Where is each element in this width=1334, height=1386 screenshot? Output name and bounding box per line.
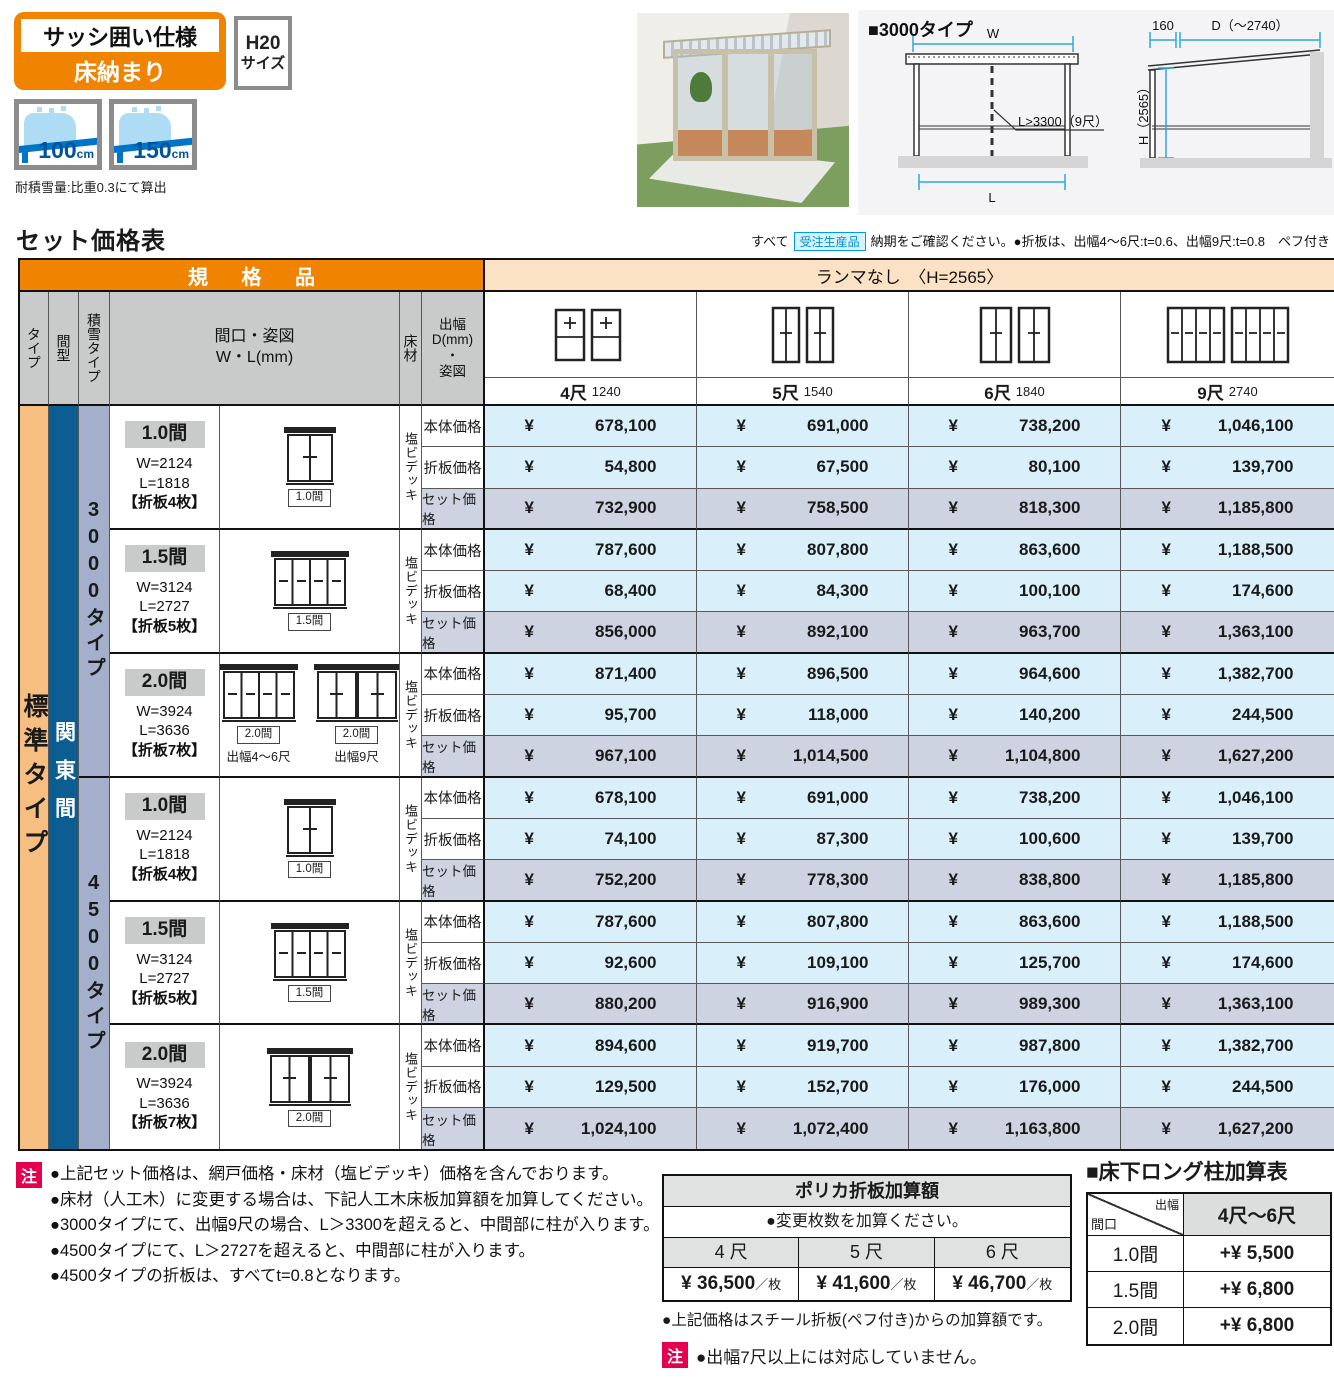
yen-symbol: ¥ xyxy=(1162,540,1171,560)
diag-label-depth: 出幅 xyxy=(1155,1196,1179,1213)
price-cell: ¥1,185,800 xyxy=(1121,860,1334,901)
price-number: 244,500 xyxy=(1232,705,1293,725)
price-value: ¥1,382,700 xyxy=(1162,664,1294,684)
roof-leg-icon xyxy=(117,148,123,163)
price-number: 738,200 xyxy=(1019,788,1080,808)
elevation-diagram-cell: 1.5間 xyxy=(220,902,400,1026)
price-cell: ¥678,100 xyxy=(485,778,697,819)
price-value: ¥1,627,200 xyxy=(1162,1119,1294,1139)
price-value: ¥919,700 xyxy=(737,1036,869,1056)
price-number: 1,188,500 xyxy=(1218,912,1294,932)
price-value: ¥871,400 xyxy=(525,664,657,684)
col-header-depth-line: 姿図 xyxy=(439,364,466,380)
size-shaku: 6尺 xyxy=(984,379,1010,404)
price-number: 174,600 xyxy=(1232,581,1293,601)
price-cell: ¥752,200 xyxy=(485,860,697,901)
window-elevation-figure: 1.5間 xyxy=(271,923,349,1003)
yen-symbol: ¥ xyxy=(1162,953,1171,973)
price-number: 244,500 xyxy=(1232,1077,1293,1097)
yen-symbol: ¥ xyxy=(525,788,534,808)
panel-count: 【折板5枚】 xyxy=(123,989,206,1009)
price-value: ¥118,000 xyxy=(737,705,869,725)
price-cell: ¥1,382,700 xyxy=(1121,654,1334,695)
size-class-badge: H20 サイズ xyxy=(234,16,292,90)
price-cell: ¥691,000 xyxy=(697,406,909,447)
yen-symbol: ¥ xyxy=(1162,912,1171,932)
price-row-label: 本体価格 xyxy=(422,654,485,695)
price-cell: ¥1,382,700 xyxy=(1121,1025,1334,1066)
panel-count: 【折板7枚】 xyxy=(123,1113,206,1133)
yen-symbol: ¥ xyxy=(949,953,958,973)
price-value: ¥838,800 xyxy=(949,870,1081,890)
col-header-snowtype: 積雪タイプ xyxy=(79,292,110,406)
figure-span-label: 1.0間 xyxy=(288,489,332,507)
yen-symbol: ¥ xyxy=(949,581,958,601)
figure-span-label: 1.0間 xyxy=(288,861,332,879)
polyca-price: ¥ 41,600 xyxy=(817,1273,891,1294)
price-value: ¥1,046,100 xyxy=(1162,416,1294,436)
price-row-label: 折板価格 xyxy=(422,943,485,984)
price-cell: ¥738,200 xyxy=(909,406,1121,447)
price-cell: ¥838,800 xyxy=(909,860,1121,901)
note-badge: 注 xyxy=(16,1162,42,1188)
long-pillar-add: +¥ 5,500 xyxy=(1184,1236,1330,1272)
snow-load-icon-100cm: 100cm xyxy=(14,99,102,170)
figure-caption: 出幅4～6尺 xyxy=(227,746,291,765)
price-value: ¥967,100 xyxy=(525,746,657,766)
price-value: ¥109,100 xyxy=(737,953,869,973)
price-cell: ¥87,300 xyxy=(697,819,909,860)
price-cell: ¥1,363,100 xyxy=(1121,984,1334,1025)
price-number: 1,185,800 xyxy=(1218,870,1294,890)
price-row-label: セット価格 xyxy=(422,612,485,653)
figure-span-label: 2.0間 xyxy=(288,1110,332,1128)
dim-l: L=3636 xyxy=(139,721,189,741)
yen-symbol: ¥ xyxy=(949,746,958,766)
snow-dots-icon xyxy=(132,107,137,112)
price-cell: ¥1,024,100 xyxy=(485,1108,697,1149)
price-number: 1,104,800 xyxy=(1005,746,1081,766)
dim-w: W=3924 xyxy=(136,1074,192,1094)
yen-symbol: ¥ xyxy=(525,829,534,849)
snow-load-icon-150cm: 150cm xyxy=(109,99,197,170)
yen-symbol: ¥ xyxy=(1162,1077,1171,1097)
polyca-note: ●変更枚数を加算ください。 xyxy=(664,1207,1070,1238)
price-cell: ¥1,046,100 xyxy=(1121,406,1334,447)
yen-symbol: ¥ xyxy=(525,581,534,601)
made-to-order-badge: 受注生産品 xyxy=(794,232,866,251)
yen-symbol: ¥ xyxy=(1162,788,1171,808)
price-number: 871,400 xyxy=(595,664,656,684)
yen-symbol: ¥ xyxy=(525,953,534,973)
yen-symbol: ¥ xyxy=(949,1119,958,1139)
price-number: 738,200 xyxy=(1019,416,1080,436)
snow-type-label: 4500タイプ xyxy=(79,778,110,1150)
photo-post xyxy=(768,54,774,156)
yen-symbol: ¥ xyxy=(1162,416,1171,436)
yen-symbol: ¥ xyxy=(525,457,534,477)
yen-symbol: ¥ xyxy=(737,1119,746,1139)
price-cell: ¥758,500 xyxy=(697,489,909,530)
polyca-footnote: ●上記価格はスチール折板(ペフ付き)からの加算額です。 xyxy=(662,1308,1072,1330)
yen-symbol: ¥ xyxy=(737,1077,746,1097)
price-cell: ¥1,627,200 xyxy=(1121,1108,1334,1149)
price-value: ¥87,300 xyxy=(737,829,869,849)
price-value: ¥95,700 xyxy=(525,705,657,725)
panel-count: 【折板7枚】 xyxy=(123,741,206,761)
figure-span-label: 2.0間 xyxy=(335,726,379,744)
figure-span-label: 2.0間 xyxy=(237,726,281,744)
yen-symbol: ¥ xyxy=(949,1077,958,1097)
price-value: ¥856,000 xyxy=(525,622,657,642)
elevation-diagram-cell: 2.0間出幅4～6尺 2.0間出幅9尺 xyxy=(220,654,400,778)
price-number: 863,600 xyxy=(1019,540,1080,560)
polycarbonate-surcharge-table: ポリカ折板加算額 ●変更枚数を加算ください。 4 尺 5 尺 6 尺 ¥ 36,… xyxy=(662,1174,1072,1368)
price-value: ¥1,363,100 xyxy=(1162,994,1294,1014)
price-number: 894,600 xyxy=(595,1036,656,1056)
price-value: ¥1,072,400 xyxy=(737,1119,869,1139)
long-pillar-span: 1.5間 xyxy=(1088,1272,1184,1308)
yen-symbol: ¥ xyxy=(737,912,746,932)
dim-label-midpost: L>3300（9尺） xyxy=(1018,114,1108,129)
polyca-col-header: 5 尺 xyxy=(799,1238,934,1268)
price-row-label: 本体価格 xyxy=(422,530,485,571)
price-value: ¥807,800 xyxy=(737,912,869,932)
dim-w: W=2124 xyxy=(136,826,192,846)
dim-l: L=1818 xyxy=(139,845,189,865)
size-mm: 2740 xyxy=(1229,384,1258,399)
photo-sunroom xyxy=(673,49,817,161)
spec-cell-1.0間: 1.0間W=2124L=1818【折板4枚】 xyxy=(110,778,220,902)
price-row-label: セット価格 xyxy=(422,860,485,901)
span-size-chip: 1.5間 xyxy=(125,545,205,572)
dim-label-w: W xyxy=(987,26,1000,41)
price-number: 1,382,700 xyxy=(1218,664,1294,684)
price-number: 54,800 xyxy=(605,457,657,477)
price-cell: ¥125,700 xyxy=(909,943,1121,984)
size-col-header-9尺: 9尺2740 xyxy=(1121,378,1334,406)
floor-material-cell: 塩ビデッキ xyxy=(400,778,422,902)
price-value: ¥989,300 xyxy=(949,994,1081,1014)
price-cell: ¥916,900 xyxy=(697,984,909,1025)
price-cell: ¥787,600 xyxy=(485,530,697,571)
price-cell: ¥967,100 xyxy=(485,736,697,777)
price-value: ¥174,600 xyxy=(1162,953,1294,973)
price-number: 92,600 xyxy=(605,953,657,973)
span-size-chip: 1.5間 xyxy=(125,917,205,944)
price-number: 1,072,400 xyxy=(793,1119,869,1139)
size-icon-9尺 xyxy=(1121,292,1334,378)
col-header-spec: 間口・姿図 W・L(mm) xyxy=(110,292,400,406)
price-cell: ¥1,627,200 xyxy=(1121,736,1334,777)
yen-symbol: ¥ xyxy=(525,664,534,684)
price-value: ¥139,700 xyxy=(1162,457,1294,477)
window-icon xyxy=(267,1048,353,1108)
snow-load-value: 150cm xyxy=(133,137,189,164)
price-cell: ¥896,500 xyxy=(697,654,909,695)
yen-symbol: ¥ xyxy=(949,1036,958,1056)
price-number: 758,500 xyxy=(807,498,868,518)
price-cell: ¥1,185,800 xyxy=(1121,489,1334,530)
price-value: ¥1,627,200 xyxy=(1162,746,1294,766)
price-number: 1,363,100 xyxy=(1218,994,1294,1014)
yen-symbol: ¥ xyxy=(1162,870,1171,890)
notes-block: 注 ●上記セット価格は、網戸価格・床材（塩ビデッキ）価格を含んでおります。 ●床… xyxy=(16,1162,664,1290)
yen-symbol: ¥ xyxy=(737,664,746,684)
price-number: 152,700 xyxy=(807,1077,868,1097)
polyca-value: ¥ 36,500／枚 xyxy=(664,1268,799,1300)
spec-cell-2.0間: 2.0間W=3924L=3636【折板7枚】 xyxy=(110,1025,220,1149)
price-value: ¥787,600 xyxy=(525,912,657,932)
price-cell: ¥54,800 xyxy=(485,447,697,488)
size-shaku: 4尺 xyxy=(560,379,586,404)
price-number: 1,024,100 xyxy=(581,1119,657,1139)
price-value: ¥67,500 xyxy=(737,457,869,477)
price-number: 807,800 xyxy=(807,540,868,560)
price-cell: ¥894,600 xyxy=(485,1025,697,1066)
long-pillar-span: 1.0間 xyxy=(1088,1236,1184,1272)
polyca-unit: ／枚 xyxy=(890,1277,916,1292)
price-number: 691,000 xyxy=(807,788,868,808)
yen-symbol: ¥ xyxy=(737,746,746,766)
size-icon-4尺 xyxy=(485,292,697,378)
photo-plant xyxy=(690,72,712,102)
price-cell: ¥1,104,800 xyxy=(909,736,1121,777)
yen-symbol: ¥ xyxy=(737,581,746,601)
price-number: 778,300 xyxy=(807,870,868,890)
yen-symbol: ¥ xyxy=(525,622,534,642)
price-number: 84,300 xyxy=(817,581,869,601)
price-value: ¥678,100 xyxy=(525,788,657,808)
panel-count: 【折板5枚】 xyxy=(123,617,206,637)
yen-symbol: ¥ xyxy=(525,498,534,518)
dim-w: W=2124 xyxy=(136,454,192,474)
yen-symbol: ¥ xyxy=(949,540,958,560)
window-elevation-figure: 2.0間 xyxy=(267,1048,353,1128)
price-value: ¥1,185,800 xyxy=(1162,498,1294,518)
window-icon xyxy=(314,664,400,724)
price-number: 139,700 xyxy=(1232,457,1293,477)
col-header-depth-line: D(mm) xyxy=(432,332,473,348)
group-header-standard: 規 格 品 xyxy=(20,260,485,292)
price-number: 139,700 xyxy=(1232,829,1293,849)
size-window-icon xyxy=(738,303,868,367)
price-value: ¥152,700 xyxy=(737,1077,869,1097)
price-cell: ¥74,100 xyxy=(485,819,697,860)
price-value: ¥1,163,800 xyxy=(949,1119,1081,1139)
col-header-span: 間型 xyxy=(49,292,79,406)
note-item: ●4500タイプの折板は、すべてt=0.8となります。 xyxy=(50,1264,660,1290)
price-cell: ¥118,000 xyxy=(697,695,909,736)
price-value: ¥1,188,500 xyxy=(1162,540,1294,560)
dim-label-d: D（～2740） xyxy=(1211,18,1288,33)
price-value: ¥1,046,100 xyxy=(1162,788,1294,808)
price-number: 1,046,100 xyxy=(1218,416,1294,436)
price-cell: ¥140,200 xyxy=(909,695,1121,736)
span-size-chip: 2.0間 xyxy=(125,1042,205,1069)
price-row-label: 折板価格 xyxy=(422,1067,485,1108)
polyca-unit: ／枚 xyxy=(755,1277,781,1292)
price-cell: ¥807,800 xyxy=(697,530,909,571)
price-value: ¥140,200 xyxy=(949,705,1081,725)
col-header-depth-line: 出幅 xyxy=(439,317,466,333)
price-row-label: 本体価格 xyxy=(422,1025,485,1066)
yen-symbol: ¥ xyxy=(525,540,534,560)
price-cell: ¥919,700 xyxy=(697,1025,909,1066)
price-number: 896,500 xyxy=(807,664,868,684)
price-cell: ¥80,100 xyxy=(909,447,1121,488)
yen-symbol: ¥ xyxy=(1162,664,1171,684)
note-item: ●床材（人工木）に変更する場合は、下記人工木床板加算額を加算してください。 xyxy=(50,1188,660,1214)
group-header-no-ranma: ランマなし 〈H=2565〉 xyxy=(485,260,1334,292)
price-number: 678,100 xyxy=(595,416,656,436)
dim-l: L=1818 xyxy=(139,474,189,494)
price-cell: ¥92,600 xyxy=(485,943,697,984)
price-value: ¥80,100 xyxy=(949,457,1081,477)
price-number: 838,800 xyxy=(1019,870,1080,890)
dim-label-h: H（2565） xyxy=(1136,81,1151,145)
yen-symbol: ¥ xyxy=(949,829,958,849)
price-number: 100,600 xyxy=(1019,829,1080,849)
price-cell: ¥109,100 xyxy=(697,943,909,984)
price-number: 1,163,800 xyxy=(1005,1119,1081,1139)
yen-symbol: ¥ xyxy=(525,1077,534,1097)
snow-load-value: 100cm xyxy=(38,137,94,164)
price-value: ¥691,000 xyxy=(737,416,869,436)
floor-material-cell: 塩ビデッキ xyxy=(400,530,422,654)
price-number: 967,100 xyxy=(595,746,656,766)
price-value: ¥139,700 xyxy=(1162,829,1294,849)
price-cell: ¥892,100 xyxy=(697,612,909,653)
price-number: 129,500 xyxy=(595,1077,656,1097)
price-cell: ¥738,200 xyxy=(909,778,1121,819)
price-row-label: 折板価格 xyxy=(422,447,485,488)
photo-floor xyxy=(678,130,812,156)
price-number: 807,800 xyxy=(807,912,868,932)
price-value: ¥880,200 xyxy=(525,994,657,1014)
yen-symbol: ¥ xyxy=(949,664,958,684)
price-number: 787,600 xyxy=(595,540,656,560)
price-number: 964,600 xyxy=(1019,664,1080,684)
polyca-value: ¥ 46,700／枚 xyxy=(935,1268,1070,1300)
price-row-label: セット価格 xyxy=(422,1108,485,1149)
price-value: ¥963,700 xyxy=(949,622,1081,642)
yen-symbol: ¥ xyxy=(525,912,534,932)
price-value: ¥176,000 xyxy=(949,1077,1081,1097)
spec-badge-title: サッシ囲い仕様 xyxy=(21,19,219,52)
size-col-header-6尺: 6尺1840 xyxy=(909,378,1121,406)
price-cell: ¥807,800 xyxy=(697,902,909,943)
price-cell: ¥863,600 xyxy=(909,530,1121,571)
price-cell: ¥880,200 xyxy=(485,984,697,1025)
roof-leg-icon xyxy=(22,148,28,163)
price-cell: ¥174,600 xyxy=(1121,571,1334,612)
yen-symbol: ¥ xyxy=(737,870,746,890)
span-size-chip: 1.0間 xyxy=(125,421,205,448)
size-shaku: 5尺 xyxy=(772,379,798,404)
price-number: 1,046,100 xyxy=(1218,788,1294,808)
size-icon-5尺 xyxy=(697,292,909,378)
price-number: 989,300 xyxy=(1019,994,1080,1014)
price-number: 1,014,500 xyxy=(793,746,869,766)
price-cell: ¥100,600 xyxy=(909,819,1121,860)
yen-symbol: ¥ xyxy=(949,994,958,1014)
price-value: ¥758,500 xyxy=(737,498,869,518)
spec-badge-subtitle: 床納まり xyxy=(14,53,226,87)
polyca-caution-text: ●出幅7尺以上には対応していません。 xyxy=(696,1343,987,1368)
price-value: ¥244,500 xyxy=(1162,705,1294,725)
span-column-label: 関東間 xyxy=(49,406,79,1149)
yen-symbol: ¥ xyxy=(737,457,746,477)
price-value: ¥863,600 xyxy=(949,540,1081,560)
window-icon xyxy=(284,799,336,859)
price-cell: ¥139,700 xyxy=(1121,819,1334,860)
yen-symbol: ¥ xyxy=(525,705,534,725)
spec-badge: サッシ囲い仕様 床納まり xyxy=(14,12,226,90)
spec-cell-1.5間: 1.5間W=3124L=2727【折板5枚】 xyxy=(110,530,220,654)
price-cell: ¥1,072,400 xyxy=(697,1108,909,1149)
price-cell: ¥863,600 xyxy=(909,902,1121,943)
price-cell: ¥678,100 xyxy=(485,406,697,447)
window-icon xyxy=(220,664,298,724)
order-note-suffix: 納期をご確認ください。●折板は、出幅4～6尺:t=0.6、出幅9尺:t=0.8 … xyxy=(871,234,1330,249)
order-note: すべて受注生産品納期をご確認ください。●折板は、出幅4～6尺:t=0.6、出幅9… xyxy=(751,231,1330,251)
yen-symbol: ¥ xyxy=(525,1119,534,1139)
price-cell: ¥856,000 xyxy=(485,612,697,653)
yen-symbol: ¥ xyxy=(737,498,746,518)
catalog-page: サッシ囲い仕様 床納まり H20 サイズ 100cm 150cm 耐積雪量:比重… xyxy=(0,0,1334,1386)
yen-symbol: ¥ xyxy=(1162,746,1171,766)
price-number: 752,200 xyxy=(595,870,656,890)
snow-load-icons: 100cm 150cm xyxy=(14,99,197,170)
window-icon xyxy=(284,427,336,487)
price-number: 963,700 xyxy=(1019,622,1080,642)
snow-note: 耐積雪量:比重0.3にて算出 xyxy=(15,177,167,196)
price-cell: ¥244,500 xyxy=(1121,695,1334,736)
yen-symbol: ¥ xyxy=(1162,994,1171,1014)
long-pillar-add: +¥ 6,800 xyxy=(1184,1308,1330,1344)
panel-count: 【折板4枚】 xyxy=(123,865,206,885)
price-cell: ¥244,500 xyxy=(1121,1067,1334,1108)
price-value: ¥68,400 xyxy=(525,581,657,601)
price-number: 863,600 xyxy=(1019,912,1080,932)
price-cell: ¥1,188,500 xyxy=(1121,530,1334,571)
yen-symbol: ¥ xyxy=(737,622,746,642)
price-number: 787,600 xyxy=(595,912,656,932)
price-cell: ¥987,800 xyxy=(909,1025,1121,1066)
yen-symbol: ¥ xyxy=(737,416,746,436)
window-icon xyxy=(271,923,349,983)
yen-symbol: ¥ xyxy=(737,540,746,560)
yen-symbol: ¥ xyxy=(949,788,958,808)
price-row-label: 本体価格 xyxy=(422,406,485,447)
note-item: ●3000タイプにて、出幅9尺の場合、L＞3300を超えると、中間部に柱が入りま… xyxy=(50,1213,660,1239)
price-cell: ¥964,600 xyxy=(909,654,1121,695)
price-row-label: セット価格 xyxy=(422,984,485,1025)
price-value: ¥174,600 xyxy=(1162,581,1294,601)
price-row-label: 折板価格 xyxy=(422,571,485,612)
price-cell: ¥778,300 xyxy=(697,860,909,901)
dim-l: L=2727 xyxy=(139,597,189,617)
price-number: 1,627,200 xyxy=(1218,746,1294,766)
yen-symbol: ¥ xyxy=(525,416,534,436)
price-value: ¥1,382,700 xyxy=(1162,1036,1294,1056)
elevation-diagram-cell: 1.0間 xyxy=(220,778,400,902)
elevation-diagram-cell: 1.5間 xyxy=(220,530,400,654)
polyca-col-header: 4 尺 xyxy=(664,1238,799,1268)
snow-dots-icon xyxy=(37,107,42,112)
price-value: ¥807,800 xyxy=(737,540,869,560)
